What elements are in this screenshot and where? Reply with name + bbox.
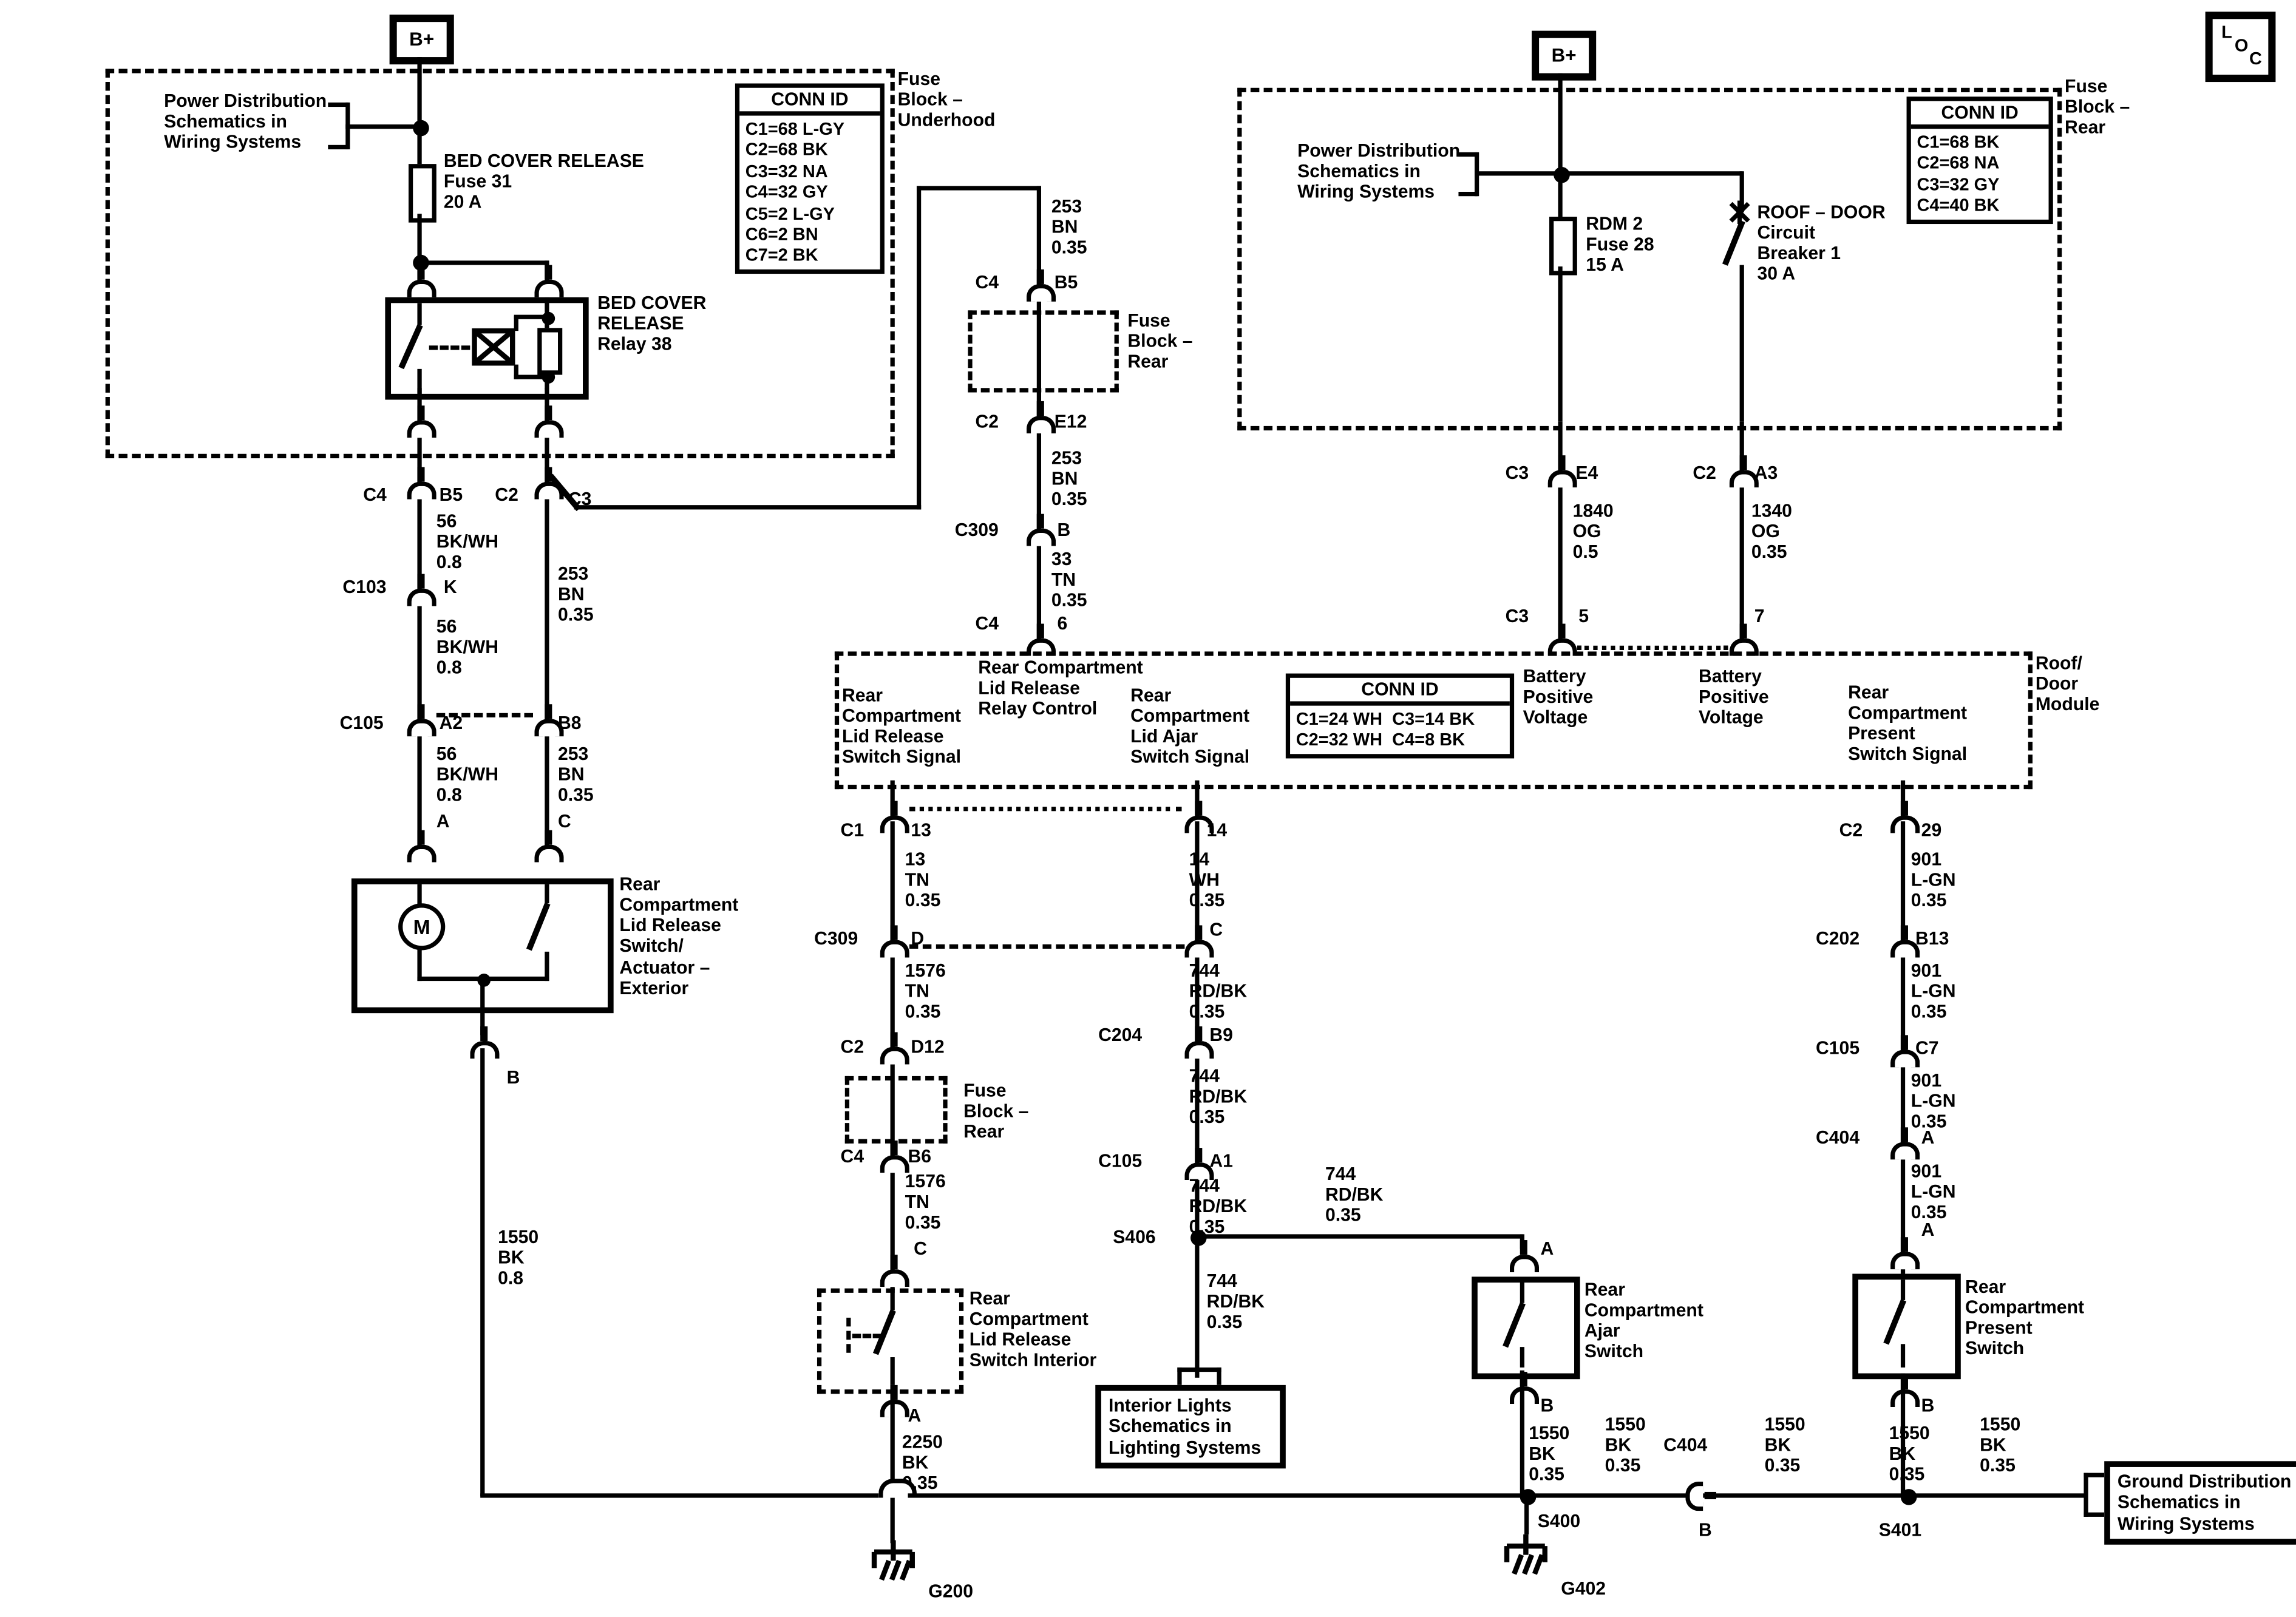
module-pin-connector	[1545, 626, 1577, 653]
wire-label: 901 L-GN 0.35	[1911, 960, 1956, 1022]
ajar-switch-box	[1472, 1276, 1580, 1379]
connector-link-dotted	[909, 807, 1182, 811]
connector-link-dotted	[1577, 646, 1728, 650]
connector-label: C105	[1816, 1038, 1860, 1059]
connector-label: C3	[1506, 606, 1529, 627]
wire-label: 1550 BK 0.35	[1765, 1414, 1805, 1476]
connector-c2-d12	[877, 1035, 909, 1061]
wire-253-bn	[545, 388, 549, 849]
connector-c309-b	[1024, 517, 1056, 543]
wire	[417, 884, 421, 905]
wire	[891, 1357, 895, 1385]
wire	[1740, 265, 1744, 422]
lid-release-switch-interior-label: Rear Compartment Lid Release Switch Inte…	[970, 1289, 1096, 1371]
wire	[417, 946, 421, 981]
conn-id-row: C1=68 BK	[1911, 132, 2049, 153]
pin-label: A	[1921, 1219, 1935, 1240]
signal-battery-positive-1: Battery Positive Voltage	[1523, 666, 1594, 728]
pin-label: C2	[495, 484, 518, 505]
relay-out-connector	[404, 408, 436, 435]
wire-1550-bk	[1520, 1371, 1524, 1496]
conn-id-row: C6=2 BN	[739, 224, 880, 245]
wire-label: 253 BN 0.35	[1051, 448, 1087, 510]
bed-cover-release-fuse-label: BED COVER RELEASE Fuse 31 20 A	[444, 151, 644, 212]
conn-id-row: C4=40 BK	[1911, 195, 2049, 216]
wire-label: 1550 BK 0.35	[1529, 1423, 1569, 1485]
pin-label: B	[1699, 1520, 1712, 1541]
ajar-switch-label: Rear Compartment Ajar Switch	[1584, 1280, 1703, 1362]
wire-label: 33 TN 0.35	[1051, 549, 1087, 611]
conn-id-row: C3=32 GY	[1911, 174, 2049, 195]
connector-label: C4	[975, 614, 999, 634]
goto-bracket	[1177, 1368, 1221, 1372]
connector-label: C105	[340, 713, 384, 734]
wire-label: 901 L-GN 0.35	[1911, 849, 1956, 911]
rdm2-fuse-label: RDM 2 Fuse 28 15 A	[1586, 214, 1654, 276]
switch-pin-connector	[877, 1258, 909, 1284]
connector-label: C2	[841, 1037, 864, 1057]
wire	[1524, 1496, 1529, 1534]
bracket-bar	[2084, 1473, 2088, 1517]
ground-label-g200: G200	[928, 1581, 973, 1602]
connector-label: C404	[1816, 1127, 1860, 1148]
connector-label: C2	[1839, 820, 1863, 841]
connector-label: C2	[975, 412, 999, 432]
ground-symbol-g402	[1503, 1534, 1549, 1578]
conn-id-row: C4=32 GY	[739, 182, 880, 203]
pin-label: 7	[1754, 606, 1765, 627]
ground-label-g402: G402	[1561, 1578, 1606, 1599]
splice-label-s400: S400	[1538, 1511, 1580, 1531]
relay-pin-connector	[404, 268, 436, 294]
wire-253-bn-feed	[574, 505, 922, 509]
wire	[420, 260, 549, 265]
wire-label: 744 RD/BK 0.35	[1189, 960, 1248, 1022]
connector-label: C105	[1098, 1151, 1142, 1171]
wire-2250-bk	[891, 1385, 895, 1544]
fuse-31-symbol	[409, 164, 436, 222]
wire	[1901, 1280, 1905, 1300]
wire-label: 744 RD/BK 0.35	[1189, 1176, 1248, 1238]
connector-label: C204	[1098, 1025, 1142, 1045]
splice-s401	[1901, 1489, 1917, 1505]
pin-label: 13	[911, 820, 931, 841]
fuse-block-rear-title: Fuse Block – Rear	[2065, 76, 2130, 138]
connector-label: C1	[841, 820, 864, 841]
wire	[545, 884, 549, 903]
signal-lid-release-switch: Rear Compartment Lid Release Switch Sign…	[842, 685, 961, 768]
conn-id-row: C7=2 BK	[739, 245, 880, 266]
pin-label: B	[1541, 1395, 1554, 1416]
wire-253-bn-feed	[917, 186, 921, 509]
pin-label: A	[1921, 1127, 1935, 1148]
relay-switch-wire	[417, 303, 421, 325]
fuse-block-rear-label: Fuse Block – Rear	[1127, 310, 1192, 372]
wire	[891, 1289, 895, 1310]
roof-door-breaker-label: ROOF – DOOR Circuit Breaker 1 30 A	[1758, 202, 1886, 285]
connector-c4-b5	[404, 470, 436, 496]
junction	[413, 120, 429, 137]
ground-symbol-g200	[870, 1541, 917, 1584]
wire-label: 1576 TN 0.35	[905, 1171, 946, 1233]
wire-label: 1550 BK 0.8	[498, 1227, 538, 1289]
wire	[1561, 171, 1742, 175]
actuator-pin-a-connector	[404, 833, 436, 859]
relay-out-connector	[532, 408, 564, 435]
wire-label: 744 RD/BK 0.35	[1207, 1271, 1265, 1333]
conn-id-row: C1=68 L-GY	[739, 118, 880, 140]
conn-id-row: C2=68 NA	[1911, 153, 2049, 174]
pin-label: C7	[1915, 1038, 1939, 1059]
relay-coil-icon	[472, 328, 515, 366]
connector-label: C309	[955, 520, 999, 540]
pin-label: 5	[1578, 606, 1589, 627]
goto-bracket	[1177, 1368, 1181, 1385]
pin-label: A3	[1754, 463, 1778, 483]
conn-id-row: C2=68 BK	[739, 140, 880, 161]
pin-label: A2	[440, 713, 463, 734]
connector-c309-d	[877, 928, 909, 954]
splice-label-s406: S406	[1113, 1227, 1155, 1247]
connector-c4-b6	[877, 1144, 909, 1170]
pin-label: B	[1058, 520, 1071, 540]
pin-label: A	[908, 1406, 922, 1426]
present-switch-box	[1852, 1274, 1960, 1380]
connector-label: C4	[975, 273, 999, 293]
pin-label: B13	[1915, 928, 1949, 949]
battery-positive-terminal-right: B+	[1532, 31, 1596, 81]
signal-present-switch: Rear Compartment Present Switch Signal	[1848, 682, 1967, 765]
motor-symbol: M	[398, 903, 445, 950]
connector-label: C4	[841, 1147, 864, 1167]
conn-id-rear-table: CONN ID C1=68 BK C2=68 NA C3=32 GY C4=40…	[1907, 97, 2053, 223]
connector-label: C202	[1816, 928, 1860, 949]
loc-letter-o: O	[2235, 35, 2249, 56]
pin-label: E4	[1575, 463, 1598, 483]
pin-label: B5	[1055, 273, 1078, 293]
connector-c404-a	[1887, 1130, 1920, 1156]
wire-1550-bk-08	[480, 1048, 484, 1496]
wire-label: 901 L-GN 0.35	[1911, 1161, 1956, 1223]
conn-id-row: C1=24 WH C3=14 BK	[1290, 708, 1510, 730]
wire-label: 253 BN 0.35	[558, 564, 594, 626]
wire-1550-bk	[1901, 1374, 1905, 1497]
wire	[1475, 171, 1561, 175]
wire-label: 1576 TN 0.35	[905, 960, 946, 1022]
connector-label: C404	[1663, 1435, 1707, 1456]
pin-label: B9	[1209, 1025, 1233, 1045]
roof-door-module-label: Roof/ Door Module	[2036, 653, 2100, 715]
connector-c2-e12	[1024, 404, 1056, 430]
conn-id-row: C3=32 NA	[739, 161, 880, 182]
ground-distribution-ref-box: Ground Distribution Schematics in Wiring…	[2104, 1461, 2296, 1545]
wire	[1520, 1347, 1524, 1368]
wire-253-bn-feed	[917, 186, 1041, 190]
connector-c105-a2	[404, 707, 436, 733]
pin-label: 29	[1921, 820, 1942, 841]
connector-c3-e4	[1545, 458, 1577, 484]
pin-label: A1	[1209, 1151, 1233, 1171]
present-switch-pin-a-connector	[1887, 1240, 1920, 1266]
power-distribution-ref-right: Power Distribution Schematics in Wiring …	[1297, 141, 1460, 203]
pin-label: B6	[908, 1147, 932, 1167]
conn-id-row: C2=32 WH C4=8 BK	[1290, 730, 1510, 751]
ajar-switch-pin-a-connector	[1507, 1243, 1539, 1269]
pin-label: D12	[911, 1037, 944, 1057]
conn-id-title: CONN ID	[1911, 101, 2049, 129]
wire-label: 56 BK/WH 0.8	[436, 616, 498, 678]
bed-cover-release-relay-label: BED COVER RELEASE Relay 38	[597, 293, 706, 354]
wire-label: 56 BK/WH 0.8	[436, 511, 498, 573]
wire-744-rdbk-branch	[1198, 1234, 1523, 1238]
connector-c103	[404, 577, 436, 603]
wire-label: 14 WH 0.35	[1189, 849, 1225, 911]
connector-c309-link	[909, 944, 1184, 949]
pin-label: C	[914, 1239, 927, 1259]
module-pin-connector	[1024, 626, 1056, 653]
connector-label: C3	[1506, 463, 1529, 483]
wire-label: 901 L-GN 0.35	[1911, 1070, 1956, 1132]
conn-id-title: CONN ID	[1290, 678, 1510, 706]
wire-label: 253 BN 0.35	[1051, 196, 1087, 258]
pin-label: 14	[1207, 820, 1228, 841]
conn-id-module-table: CONN ID C1=24 WH C3=14 BK C2=32 WH C4=8 …	[1286, 674, 1514, 758]
wire-label: 1550 BK 0.35	[1605, 1414, 1646, 1476]
present-switch-label: Rear Compartment Present Switch	[1965, 1276, 2084, 1359]
pin-label: A	[1541, 1239, 1554, 1259]
connector-c4-b5-rear	[1024, 273, 1056, 299]
wire-56-bkwh	[417, 388, 421, 849]
actuator-pin-c-connector	[532, 833, 564, 859]
loc-letter-l: L	[2221, 22, 2232, 42]
connector-label: C2	[1693, 463, 1716, 483]
interior-lights-ref-box: Interior Lights Schematics in Lighting S…	[1095, 1385, 1286, 1469]
pin-label: C4	[363, 484, 387, 505]
wire-label: 253 BN 0.35	[558, 744, 594, 805]
pin-label: B	[1921, 1395, 1935, 1416]
pin-label: C	[558, 811, 571, 832]
wire	[1901, 1344, 1905, 1368]
connector-label: C309	[814, 928, 858, 949]
ground-bus	[480, 1493, 878, 1497]
fuse-block-rear-inline-box-2	[845, 1076, 948, 1144]
pin-label: C	[1209, 920, 1223, 940]
pin-label: 6	[1058, 614, 1068, 634]
goto-bracket	[1217, 1368, 1221, 1385]
wire	[1558, 266, 1562, 422]
splice-label-s401: S401	[1879, 1520, 1921, 1541]
relay-actuation-dash	[429, 345, 470, 350]
fuse-block-underhood-label: Fuse Block – Underhood	[898, 69, 996, 131]
fuse-block-rear-label-2: Fuse Block – Rear	[963, 1080, 1028, 1142]
conn-id-title: CONN ID	[739, 88, 880, 116]
conn-id-underhood-table: CONN ID C1=68 L-GY C2=68 BK C3=32 NA C4=…	[735, 83, 885, 273]
pin-label: B5	[440, 484, 463, 505]
wire-label: 1550 BK 0.35	[1980, 1414, 2020, 1476]
wire	[1520, 1283, 1524, 1303]
pin-label: B8	[558, 713, 582, 734]
wire-label: 13 TN 0.35	[905, 849, 941, 911]
module-pin-connector	[1727, 626, 1759, 653]
wiring-diagram: B+ Fuse Block – Underhood Power Distribu…	[0, 0, 2296, 1616]
wire-label: 744 RD/BK 0.35	[1189, 1066, 1248, 1128]
wire-label: 1840 OG 0.5	[1573, 501, 1614, 563]
switch-actuator-dash	[852, 1334, 881, 1338]
wire-label: 1550 BK 0.35	[1889, 1423, 1930, 1485]
pin-label: B	[507, 1067, 520, 1088]
power-distribution-ref-left: Power Distribution Schematics in Wiring …	[164, 91, 327, 153]
connector-c404-inline	[1685, 1479, 1717, 1511]
wire-label: 744 RD/BK 0.35	[1325, 1164, 1384, 1226]
relay-resistor-symbol	[537, 328, 562, 375]
signal-lid-ajar-switch: Rear Compartment Lid Ajar Switch Signal	[1130, 685, 1249, 768]
bracket-tick	[2084, 1513, 2104, 1517]
conn-id-row: C5=2 L-GY	[739, 203, 880, 224]
switch-actuator-dash	[846, 1318, 851, 1353]
pin-label: A	[436, 811, 450, 832]
connector-label: C103	[342, 577, 386, 597]
fuse-block-rear-inline-box	[968, 310, 1118, 392]
relay-pin-connector	[532, 268, 564, 294]
lid-release-actuator-label: Rear Compartment Lid Release Switch/ Act…	[619, 874, 738, 998]
wire-label: 1340 OG 0.35	[1751, 501, 1792, 563]
signal-battery-positive-2: Battery Positive Voltage	[1699, 666, 1769, 728]
fuse-28-symbol	[1549, 217, 1577, 275]
wire-label: 56 BK/WH 0.8	[436, 744, 498, 805]
signal-relay-control: Rear Compartment Lid Release Relay Contr…	[978, 657, 1143, 719]
loc-badge: L O C	[2206, 12, 2276, 82]
pin-label: K	[444, 577, 457, 597]
loc-letter-c: C	[2249, 49, 2262, 69]
wire	[345, 124, 420, 129]
bracket-tick	[2084, 1473, 2104, 1477]
pin-label: E12	[1055, 412, 1087, 432]
